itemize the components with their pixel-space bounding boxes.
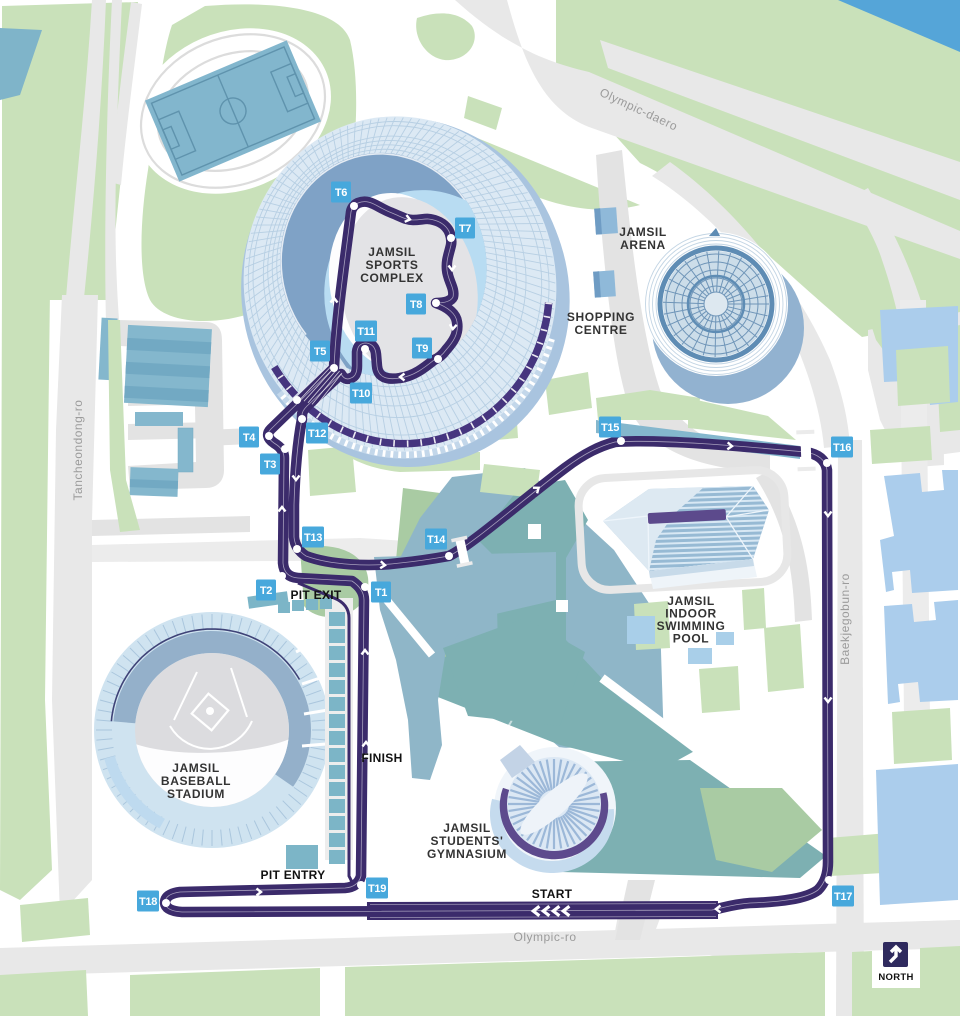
svg-text:JAMSIL: JAMSIL xyxy=(172,761,220,775)
svg-text:T14: T14 xyxy=(427,534,446,546)
svg-text:PIT ENTRY: PIT ENTRY xyxy=(261,868,326,882)
svg-text:T1: T1 xyxy=(375,587,387,599)
svg-text:PIT EXIT: PIT EXIT xyxy=(290,588,341,602)
svg-text:SHOPPING: SHOPPING xyxy=(567,310,635,324)
svg-text:T9: T9 xyxy=(416,343,428,355)
svg-text:NORTH: NORTH xyxy=(878,972,913,983)
svg-text:JAMSIL: JAMSIL xyxy=(368,245,416,259)
svg-text:T6: T6 xyxy=(335,187,347,199)
svg-text:STADIUM: STADIUM xyxy=(167,787,225,801)
svg-text:POOL: POOL xyxy=(673,632,709,646)
svg-text:T12: T12 xyxy=(308,428,326,440)
svg-text:T19: T19 xyxy=(368,883,386,895)
svg-text:Olympic-ro: Olympic-ro xyxy=(513,930,576,944)
svg-text:T4: T4 xyxy=(243,432,256,444)
svg-text:Tancheondong-ro: Tancheondong-ro xyxy=(71,400,85,501)
svg-text:COMPLEX: COMPLEX xyxy=(360,271,424,285)
svg-text:BASEBALL: BASEBALL xyxy=(161,774,231,788)
svg-text:STUDENTS': STUDENTS' xyxy=(431,834,504,848)
svg-text:T2: T2 xyxy=(260,585,272,597)
svg-text:T13: T13 xyxy=(304,532,322,544)
svg-text:T10: T10 xyxy=(352,388,370,400)
svg-text:FINISH: FINISH xyxy=(361,751,402,765)
svg-text:T16: T16 xyxy=(833,442,851,454)
svg-text:JAMSIL: JAMSIL xyxy=(619,225,667,239)
svg-text:T17: T17 xyxy=(834,891,852,903)
svg-text:JAMSIL: JAMSIL xyxy=(443,821,491,835)
svg-text:T7: T7 xyxy=(459,223,471,235)
svg-text:T15: T15 xyxy=(601,422,619,434)
svg-text:T3: T3 xyxy=(264,459,276,471)
svg-text:GYMNASIUM: GYMNASIUM xyxy=(427,847,507,861)
svg-text:Baekjegobun-ro: Baekjegobun-ro xyxy=(838,573,852,665)
svg-text:T8: T8 xyxy=(410,299,422,311)
svg-text:SPORTS: SPORTS xyxy=(366,258,419,272)
svg-text:ARENA: ARENA xyxy=(620,238,666,252)
svg-text:T5: T5 xyxy=(314,346,326,358)
svg-text:T18: T18 xyxy=(139,896,157,908)
svg-text:CENTRE: CENTRE xyxy=(575,323,628,337)
svg-text:T11: T11 xyxy=(357,326,375,338)
svg-text:START: START xyxy=(532,887,573,901)
